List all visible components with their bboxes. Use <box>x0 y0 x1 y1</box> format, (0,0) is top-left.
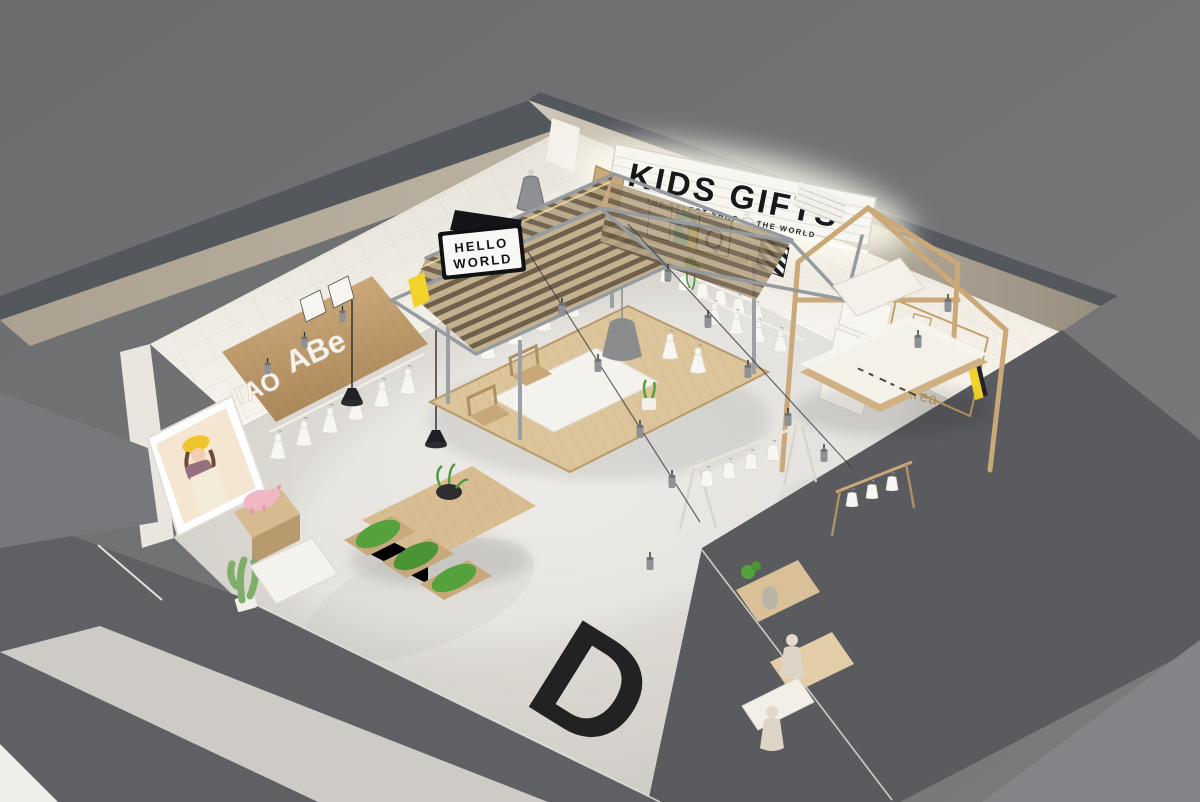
scene-svg: KIDS GIFTS THE SELECT SHOP IN THE WORLD … <box>0 0 1200 802</box>
store-render: KIDS GIFTS THE SELECT SHOP IN THE WORLD … <box>0 0 1200 802</box>
display-vase <box>762 586 778 610</box>
